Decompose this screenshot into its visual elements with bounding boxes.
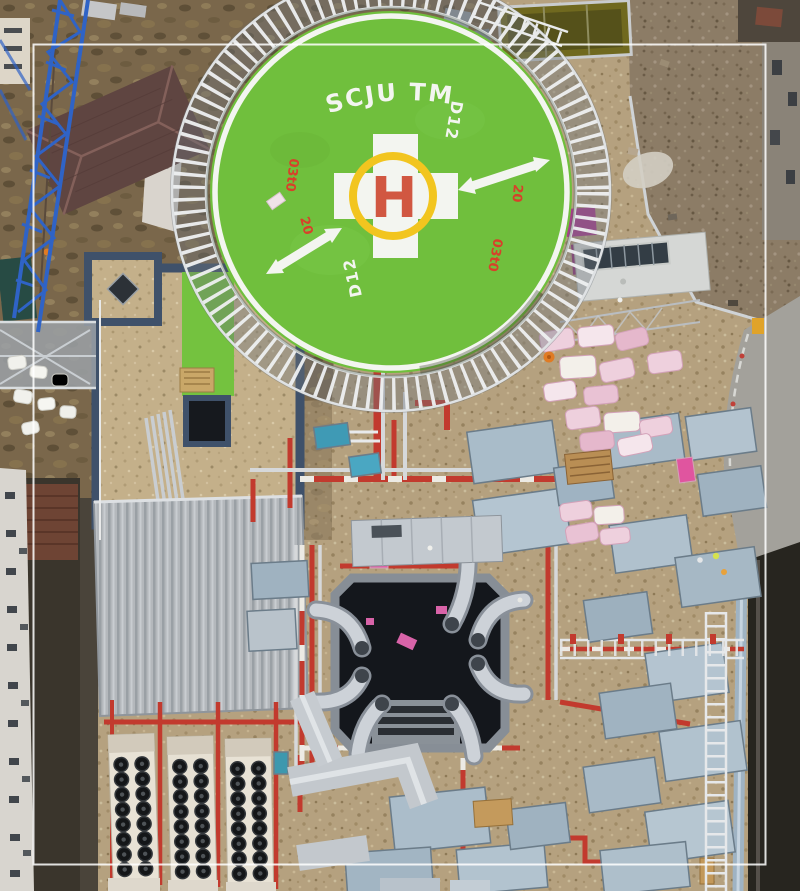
chiller-plant [108,733,274,891]
pink-crate [676,457,695,483]
chiller-unit-3 [225,738,274,891]
photo-canvas: H SCJU TM D12 D12 03t0 20 20 03t0 [0,0,800,891]
yellow-equipment [752,318,764,334]
helipad: H SCJU TM D12 D12 03t0 20 20 03t0 [172,0,610,411]
roof-opening [186,398,228,444]
marking-right-size: 20 [508,184,525,203]
helipad-letter-h: H [371,166,418,231]
teal-unit [349,453,381,477]
ahu-unit [351,515,503,566]
chiller-unit-2 [167,736,217,889]
teal-unit [274,752,288,774]
aerial-photo-hospital-helipad: H SCJU TM D12 D12 03t0 20 20 03t0 [0,0,800,891]
teal-unit [314,423,351,450]
